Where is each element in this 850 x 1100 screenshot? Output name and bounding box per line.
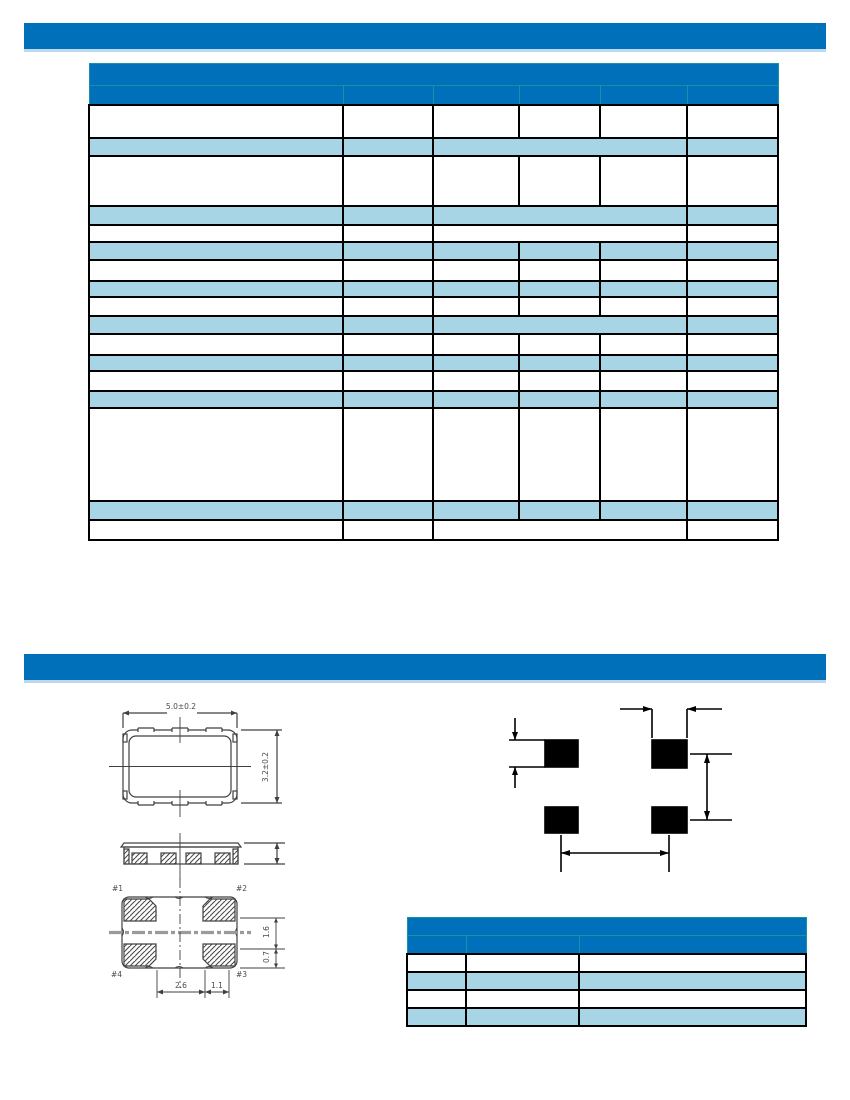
spec_table-cell-7-0: [89, 242, 343, 260]
spec_table-cell-13-1: [343, 355, 433, 371]
spec_table-cell-3-1: [343, 138, 433, 156]
pin_table-cell-2-1: [466, 954, 579, 972]
spec_table-cell-13-2: [433, 355, 519, 371]
spec_table-cell-13-5: [687, 355, 778, 371]
spec_table-cell-14-0: [89, 371, 343, 391]
spec_table-cell-7-5: [687, 242, 778, 260]
spec_table-cell-2-4: [600, 105, 687, 138]
dim-1-6-label: 1.6: [262, 926, 271, 938]
pin_table-cell-3-0: [407, 972, 466, 990]
pin_table-cell-4-0: [407, 990, 466, 1008]
pin_table-cell-0-0: [407, 918, 806, 936]
spec_table-cell-16-2: [433, 408, 519, 501]
spec_table-cell-1-0: [89, 86, 343, 105]
spec_table-cell-1-1: [343, 86, 433, 105]
spec_table-cell-17-2: [433, 501, 519, 520]
package-bottom-view-drawing: #1 #2 #3 #4 1.6 0.7 2.6 1.1: [105, 876, 305, 1002]
spec_table-cell-15-0: [89, 391, 343, 408]
spec_table-cell-4-0: [89, 156, 343, 206]
pin-table-container: [406, 917, 807, 1027]
spec_table-row-1: [89, 86, 778, 105]
spec_table-cell-18-3: [687, 520, 778, 540]
spec_table-cell-12-4: [600, 334, 687, 355]
spec_table-cell-16-5: [687, 408, 778, 501]
spec_table-row-5: [89, 206, 778, 225]
pin_table-row-5: [407, 1008, 806, 1026]
spec_table-cell-4-4: [600, 156, 687, 206]
spec_table-cell-9-5: [687, 281, 778, 297]
spec_table-cell-4-2: [433, 156, 519, 206]
top-view-height-label: 3.2±0.2: [261, 752, 270, 782]
pin_table-cell-5-2: [579, 1008, 806, 1026]
spec_table-cell-9-1: [343, 281, 433, 297]
spec_table-cell-4-1: [343, 156, 433, 206]
spec_table-cell-17-3: [519, 501, 600, 520]
pin_table-cell-1-1: [466, 936, 579, 954]
datasheet-page: { "colors": { "brand_blue": "#0070ba", "…: [0, 0, 850, 1100]
spec_table-cell-11-1: [343, 316, 433, 334]
pin_table-cell-4-1: [466, 990, 579, 1008]
spec_table-row-4: [89, 156, 778, 206]
spec_table-cell-14-2: [433, 371, 519, 391]
spec_table-row-17: [89, 501, 778, 520]
spec_table-row-15: [89, 391, 778, 408]
spec_table-row-8: [89, 260, 778, 281]
pin_table: [406, 917, 807, 1027]
spec_table-cell-2-1: [343, 105, 433, 138]
spec_table-cell-2-2: [433, 105, 519, 138]
spec_table-cell-16-0: [89, 408, 343, 501]
pin_table-cell-4-2: [579, 990, 806, 1008]
spec_table-cell-9-0: [89, 281, 343, 297]
spec_table-cell-16-1: [343, 408, 433, 501]
spec_table-cell-1-5: [687, 86, 778, 105]
top-header-bar: [24, 23, 826, 52]
spec_table-cell-1-4: [600, 86, 687, 105]
spec_table-cell-11-2: [433, 316, 687, 334]
land-pattern-drawing: [480, 690, 760, 880]
spec_table-cell-11-3: [687, 316, 778, 334]
spec_table-cell-3-0: [89, 138, 343, 156]
spec_table-cell-17-4: [600, 501, 687, 520]
spec_table-cell-9-3: [519, 281, 600, 297]
spec_table-cell-8-3: [519, 260, 600, 281]
spec_table-cell-15-3: [519, 391, 600, 408]
spec_table-cell-12-3: [519, 334, 600, 355]
spec_table-cell-18-0: [89, 520, 343, 540]
spec_table-row-14: [89, 371, 778, 391]
spec_table-cell-6-2: [433, 225, 687, 242]
spec_table-cell-17-1: [343, 501, 433, 520]
spec_table-cell-18-1: [343, 520, 433, 540]
spec_table-cell-18-2: [433, 520, 687, 540]
spec_table-cell-7-1: [343, 242, 433, 260]
dim-1-1-label: 1.1: [211, 981, 223, 990]
spec_table-row-7: [89, 242, 778, 260]
spec_table-cell-8-2: [433, 260, 519, 281]
spec_table-row-16: [89, 408, 778, 501]
spec_table-cell-16-4: [600, 408, 687, 501]
spec_table-row-0: [89, 64, 778, 86]
pin_table-cell-2-0: [407, 954, 466, 972]
spec_table-cell-15-1: [343, 391, 433, 408]
spec_table-cell-10-4: [600, 297, 687, 316]
pin_table-row-4: [407, 990, 806, 1008]
spec_table-cell-8-1: [343, 260, 433, 281]
spec_table-cell-5-3: [687, 206, 778, 225]
spec_table-row-9: [89, 281, 778, 297]
spec_table-cell-10-3: [519, 297, 600, 316]
spec_table-cell-3-2: [433, 138, 687, 156]
spec_table-cell-15-2: [433, 391, 519, 408]
spec_table-cell-5-1: [343, 206, 433, 225]
spec_table-row-3: [89, 138, 778, 156]
spec_table-row-11: [89, 316, 778, 334]
spec_table-cell-6-0: [89, 225, 343, 242]
pin_table-cell-3-1: [466, 972, 579, 990]
spec_table-cell-7-2: [433, 242, 519, 260]
spec_table-cell-8-0: [89, 260, 343, 281]
spec_table-cell-12-2: [433, 334, 519, 355]
spec_table-row-2: [89, 105, 778, 138]
spec_table-cell-2-5: [687, 105, 778, 138]
spec_table-cell-10-5: [687, 297, 778, 316]
spec_table-cell-6-1: [343, 225, 433, 242]
pin_table-row-3: [407, 972, 806, 990]
spec_table-cell-13-0: [89, 355, 343, 371]
spec_table-cell-17-0: [89, 501, 343, 520]
spec_table-cell-6-3: [687, 225, 778, 242]
spec_table-cell-4-5: [687, 156, 778, 206]
pin_table-row-1: [407, 936, 806, 954]
spec_table-cell-2-0: [89, 105, 343, 138]
spec_table-cell-7-3: [519, 242, 600, 260]
spec-table-container: [88, 63, 779, 541]
spec_table-cell-5-2: [433, 206, 687, 225]
pin1-label: #1: [112, 884, 123, 893]
spec_table-cell-12-0: [89, 334, 343, 355]
spec_table: [88, 63, 779, 541]
pin_table-cell-3-2: [579, 972, 806, 990]
spec_table-cell-5-0: [89, 206, 343, 225]
spec_table-cell-10-2: [433, 297, 519, 316]
pin_table-cell-1-2: [579, 936, 806, 954]
spec_table-row-18: [89, 520, 778, 540]
pin_table-cell-2-2: [579, 954, 806, 972]
spec_table-cell-1-2: [433, 86, 519, 105]
spec_table-cell-3-3: [687, 138, 778, 156]
dim-2-6-label: 2.6: [175, 981, 187, 990]
spec_table-cell-14-5: [687, 371, 778, 391]
spec_table-cell-9-2: [433, 281, 519, 297]
pin_table-cell-1-0: [407, 936, 466, 954]
spec_table-cell-1-3: [519, 86, 600, 105]
spec_table-cell-12-5: [687, 334, 778, 355]
top-view-width-label: 5.0±0.2: [166, 702, 196, 711]
spec_table-cell-0-0: [89, 64, 778, 86]
spec_table-row-12: [89, 334, 778, 355]
spec_table-cell-14-3: [519, 371, 600, 391]
spec_table-cell-8-5: [687, 260, 778, 281]
spec_table-cell-13-4: [600, 355, 687, 371]
spec_table-cell-15-4: [600, 391, 687, 408]
dim-0-7-label: 0.7: [262, 951, 271, 963]
spec_table-cell-16-3: [519, 408, 600, 501]
spec_table-cell-7-4: [600, 242, 687, 260]
spec_table-cell-9-4: [600, 281, 687, 297]
pin3-label: #3: [236, 970, 247, 979]
pin_table-cell-5-1: [466, 1008, 579, 1026]
spec_table-cell-13-3: [519, 355, 600, 371]
package-top-view-drawing: 5.0±0.2 3.2±0.2: [105, 697, 305, 833]
spec_table-cell-11-0: [89, 316, 343, 334]
spec_table-cell-12-1: [343, 334, 433, 355]
spec_table-cell-10-1: [343, 297, 433, 316]
spec_table-cell-2-3: [519, 105, 600, 138]
spec_table-row-6: [89, 225, 778, 242]
pin_table-row-0: [407, 918, 806, 936]
spec_table-cell-8-4: [600, 260, 687, 281]
spec_table-cell-14-1: [343, 371, 433, 391]
spec_table-cell-10-0: [89, 297, 343, 316]
spec_table-cell-15-5: [687, 391, 778, 408]
spec_table-row-10: [89, 297, 778, 316]
section-divider-bar: [24, 654, 826, 683]
pin2-label: #2: [236, 884, 247, 893]
pin_table-cell-5-0: [407, 1008, 466, 1026]
spec_table-cell-17-5: [687, 501, 778, 520]
spec_table-row-13: [89, 355, 778, 371]
pin4-label: #4: [111, 970, 122, 979]
spec_table-cell-14-4: [600, 371, 687, 391]
spec_table-cell-4-3: [519, 156, 600, 206]
pin_table-row-2: [407, 954, 806, 972]
